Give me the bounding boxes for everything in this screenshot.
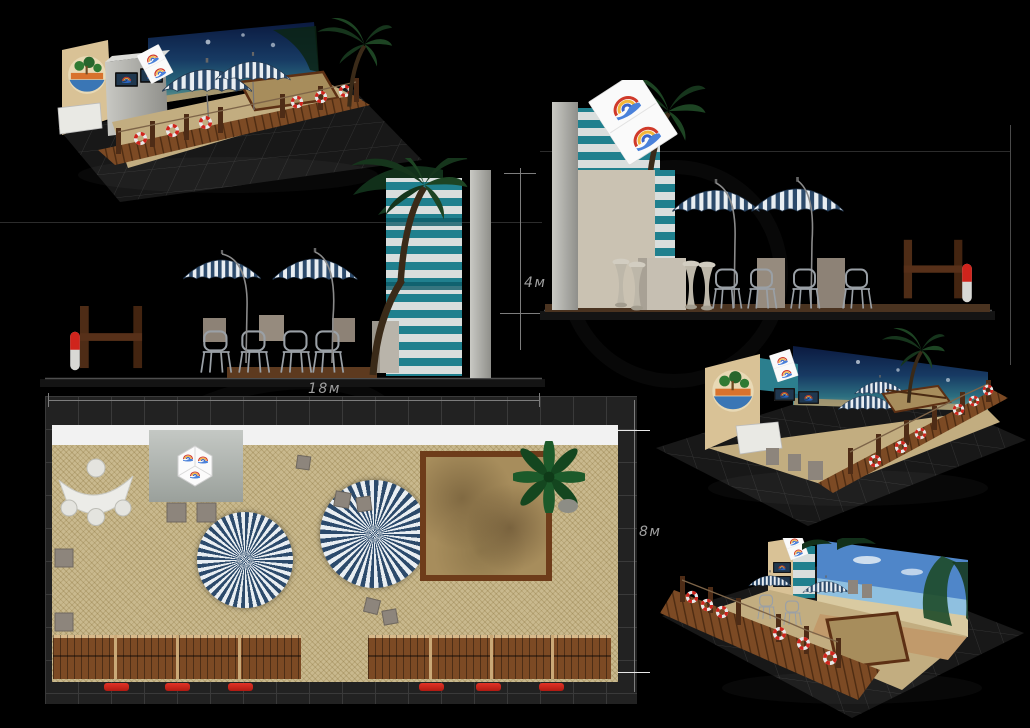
perspective-render-back-view (652, 538, 1030, 728)
dimension-extension (618, 672, 650, 673)
dimension-tick (500, 313, 540, 314)
floor-plan-view (45, 396, 637, 704)
dimension-label-4m: 4м (524, 275, 546, 291)
reception-desk-top (59, 459, 133, 526)
side-elevation-view (40, 158, 545, 408)
dimension-label-18m: 18м (308, 381, 341, 397)
wooden-h-frame (904, 240, 963, 299)
dimension-label-8m: 8м (639, 524, 661, 540)
tv-screen (774, 388, 795, 401)
striped-umbrella (752, 177, 843, 211)
dimension-tick (48, 393, 49, 407)
logo-cube-top (178, 446, 212, 486)
wooden-h-frame (80, 306, 142, 368)
beach-collage-graphic (712, 370, 753, 411)
dimension-line-4m (520, 168, 521, 350)
stand-design-board: 18м 4м 8м (0, 0, 1030, 728)
tv-screen (115, 72, 138, 86)
plan-furniture-overlay (45, 396, 637, 704)
rock (558, 499, 578, 513)
dimension-line-18m (48, 400, 540, 401)
dimension-tick (504, 173, 536, 174)
dimension-line-8m (634, 400, 635, 692)
front-elevation-view (540, 80, 1000, 345)
dimension-extension (618, 430, 650, 431)
lifebuoy (962, 264, 972, 302)
cafe-furniture (201, 315, 399, 373)
tv-screen (798, 391, 819, 404)
stool-squares (55, 455, 398, 631)
lifebuoy (70, 332, 80, 370)
tv-screen (773, 562, 791, 573)
beach-collage-graphic (68, 56, 106, 94)
tall-grey-panel (552, 102, 578, 310)
cafe-furniture (713, 258, 872, 309)
perspective-render-rear-right (648, 328, 1030, 538)
dimension-tick (539, 393, 540, 407)
tall-grey-panel (470, 170, 491, 378)
